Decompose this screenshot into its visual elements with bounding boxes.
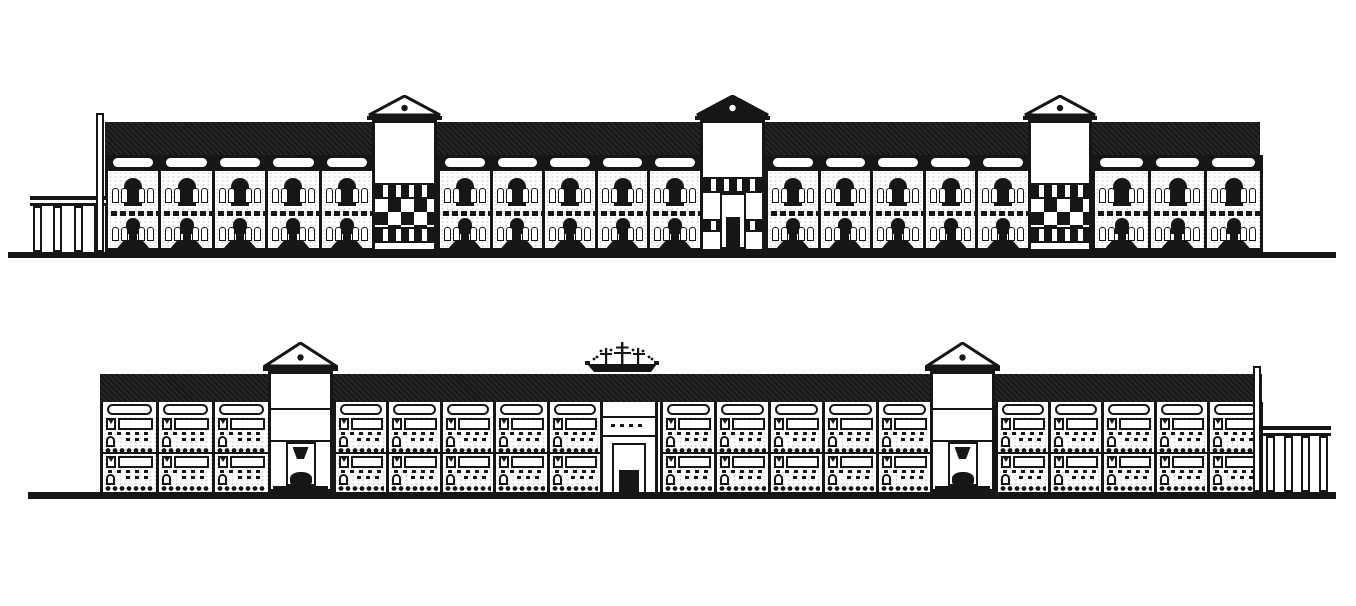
- frieze-panel: [931, 158, 971, 167]
- arch-niche: [1227, 218, 1241, 234]
- lintel-window: [511, 456, 543, 468]
- small-arched-window: [162, 436, 171, 447]
- upper-floor: [493, 171, 543, 211]
- peak-notch-icon: [501, 419, 507, 424]
- small-arched-window: [281, 227, 288, 241]
- niche-pedestal: [1106, 240, 1138, 248]
- frieze-panel: [107, 404, 152, 415]
- peaked-window: [1160, 418, 1170, 430]
- dash-marks: [793, 476, 819, 479]
- small-arched-window: [774, 474, 783, 485]
- dash-marks: [901, 438, 927, 441]
- bay-frieze: [978, 155, 1028, 171]
- window-row: [392, 456, 436, 468]
- small-arched-window: [162, 474, 171, 485]
- small-arched-window: [654, 227, 661, 241]
- facade-segment: [437, 155, 703, 252]
- small-arched-window: [666, 436, 675, 447]
- lower-floor: [161, 216, 211, 252]
- frieze-panel: [447, 404, 489, 415]
- facade-segment: [105, 155, 375, 252]
- bay: [443, 402, 496, 492]
- bay: [103, 402, 159, 492]
- floor: [336, 416, 386, 454]
- dentil-row: [1106, 448, 1152, 453]
- small-arched-window: [1155, 188, 1162, 203]
- pediment-oculus-icon: [401, 105, 407, 111]
- peaked-window: [162, 418, 172, 430]
- dentil-row: [719, 448, 766, 453]
- frieze-panel: [721, 404, 764, 415]
- window-row: [553, 456, 597, 468]
- small-arched-window: [1160, 474, 1169, 485]
- dash-band: [108, 470, 151, 473]
- pavilion-door: [619, 470, 639, 492]
- lower-row: [1157, 474, 1207, 485]
- peak-notch-icon: [884, 419, 890, 424]
- tower-blank-panel: [375, 123, 434, 183]
- small-arched-window: [955, 188, 962, 203]
- tower-pediment: [695, 95, 770, 116]
- floor: [771, 416, 822, 454]
- window-row: [720, 456, 765, 468]
- small-arched-window: [1128, 227, 1135, 241]
- frieze-panel: [327, 158, 367, 167]
- small-arched-window: [964, 227, 971, 241]
- small-arched-window: [584, 188, 591, 203]
- small-arched-window: [1184, 188, 1191, 203]
- dash-band: [1003, 470, 1043, 473]
- lower-floor: [926, 216, 976, 252]
- peaked-window: [1107, 456, 1117, 468]
- small-arched-window: [828, 474, 837, 485]
- floor: [103, 454, 156, 492]
- peak-notch-icon: [164, 419, 170, 424]
- ship-ornament-svg: [585, 340, 659, 374]
- tower: [1023, 95, 1097, 252]
- tower-pediment: [263, 342, 338, 367]
- lower-row: [159, 436, 212, 447]
- bay-frieze: [1151, 155, 1204, 171]
- peaked-window: [106, 418, 116, 430]
- peaked-window: [1001, 418, 1011, 430]
- ship-shape: [585, 342, 659, 372]
- small-arched-window: [772, 227, 779, 241]
- small-arched-window: [1008, 227, 1015, 241]
- upper-floor: [161, 171, 211, 211]
- lower-floor: [493, 216, 543, 252]
- peaked-window: [553, 418, 563, 430]
- peaked-window: [446, 418, 456, 430]
- dentil-row: [445, 448, 491, 453]
- small-arched-window: [1099, 188, 1106, 203]
- bay: [1095, 155, 1151, 252]
- peak-notch-icon: [108, 457, 114, 462]
- dentil-row: [445, 486, 491, 491]
- lintel-window: [678, 418, 711, 430]
- dentil-row: [665, 486, 712, 491]
- lintel-window: [840, 418, 873, 430]
- bay-frieze: [650, 155, 700, 171]
- bay-frieze: [663, 402, 714, 416]
- dentil-row: [665, 448, 712, 453]
- lower-row: [771, 474, 822, 485]
- floor: [717, 416, 768, 454]
- floor: [663, 454, 714, 492]
- tower-pediment: [925, 342, 1000, 367]
- lower-floor: [1207, 216, 1260, 252]
- bay-frieze: [496, 402, 546, 416]
- ground-line: [28, 492, 1336, 499]
- dash-band: [341, 470, 381, 473]
- dentil-row: [338, 486, 384, 491]
- niche-pedestal: [1218, 240, 1250, 248]
- small-arched-window: [1211, 188, 1218, 203]
- small-arched-window: [444, 227, 451, 241]
- small-arched-window: [254, 188, 261, 203]
- small-arched-window: [174, 188, 181, 203]
- dash-band: [1215, 432, 1255, 435]
- pediment-oculus-icon: [729, 105, 735, 111]
- floor: [215, 416, 268, 454]
- niche-pedestal: [829, 240, 861, 248]
- corner-post: [1253, 366, 1261, 492]
- dash-marks: [357, 476, 382, 479]
- lower-row: [215, 474, 268, 485]
- niche-pedestal: [777, 240, 809, 248]
- small-arched-window: [245, 227, 252, 241]
- lintel-window: [1119, 418, 1151, 430]
- peak-notch-icon: [555, 419, 561, 424]
- lintel-window: [1172, 418, 1204, 430]
- upper-floor: [545, 171, 595, 211]
- bay-frieze: [550, 402, 600, 416]
- lower-floor: [768, 216, 818, 252]
- dash-band: [501, 432, 541, 435]
- small-arched-window: [201, 188, 208, 203]
- dash-band: [394, 432, 434, 435]
- small-arched-window: [1164, 227, 1171, 241]
- niche-throat: [841, 233, 849, 240]
- small-arched-window: [680, 188, 687, 203]
- peak-notch-icon: [1109, 419, 1115, 424]
- column: [1284, 436, 1293, 492]
- upper-floor: [322, 171, 372, 211]
- bay: [598, 155, 651, 252]
- peak-notch-icon: [1215, 419, 1221, 424]
- dash-band: [776, 470, 817, 473]
- peaked-window: [339, 418, 349, 430]
- peaked-window: [882, 456, 892, 468]
- dash-band: [1056, 432, 1096, 435]
- squares-band: [1031, 183, 1089, 199]
- niche-pedestal: [277, 240, 309, 248]
- small-arched-window: [602, 227, 609, 241]
- small-arched-window: [991, 188, 998, 203]
- peaked-window: [666, 418, 676, 430]
- small-arched-window: [1249, 227, 1256, 241]
- tower: [263, 342, 338, 492]
- floor: [1051, 454, 1101, 492]
- base-bar: [935, 486, 990, 489]
- bay-frieze: [161, 155, 211, 171]
- peak-notch-icon: [341, 419, 347, 424]
- small-arched-window: [1001, 474, 1010, 485]
- small-arched-window: [991, 227, 998, 241]
- peak-notch-icon: [394, 419, 400, 424]
- bay-frieze: [879, 402, 930, 416]
- small-arched-window: [1128, 188, 1135, 203]
- facade-segment: [995, 402, 1263, 492]
- pediment-shape: [927, 343, 998, 366]
- dentil-row: [1159, 448, 1205, 453]
- niche-throat: [671, 233, 679, 240]
- small-arched-window: [121, 227, 128, 241]
- peaked-window: [774, 418, 784, 430]
- dentil-row: [498, 448, 544, 453]
- window-row: [774, 456, 819, 468]
- floor: [215, 454, 268, 492]
- window-row: [1001, 418, 1045, 430]
- tower-pediment: [367, 95, 442, 116]
- small-arched-window: [807, 188, 814, 203]
- peak-notch-icon: [1003, 457, 1009, 462]
- peaked-window: [392, 456, 402, 468]
- bay-frieze: [215, 155, 265, 171]
- small-arched-window: [112, 227, 119, 241]
- small-arched-window: [165, 227, 172, 241]
- floor: [825, 416, 876, 454]
- window-row: [1160, 456, 1204, 468]
- niche-pedestal: [1162, 240, 1194, 248]
- upper-floor: [650, 171, 700, 211]
- facade-segment: [333, 402, 603, 492]
- small-arched-window: [982, 188, 989, 203]
- upper-floor: [978, 171, 1028, 211]
- frieze-panel: [113, 158, 153, 167]
- lower-floor: [268, 216, 318, 252]
- small-arched-window: [506, 188, 513, 203]
- bay: [545, 155, 598, 252]
- dash-band: [830, 470, 871, 473]
- frieze-panel: [498, 158, 538, 167]
- lower-row: [215, 436, 268, 447]
- colonnade: [1263, 426, 1331, 492]
- window-row: [499, 456, 543, 468]
- bay: [1207, 155, 1263, 252]
- floor: [389, 454, 439, 492]
- lower-row: [443, 474, 493, 485]
- small-arched-window: [138, 227, 145, 241]
- lintel-window: [118, 418, 153, 430]
- lintel-window: [732, 456, 765, 468]
- window-row: [1001, 456, 1045, 468]
- small-arched-window: [912, 188, 919, 203]
- bay-frieze: [873, 155, 923, 171]
- peaked-window: [1213, 418, 1223, 430]
- dash-marks: [182, 476, 209, 479]
- dentil-row: [105, 486, 154, 491]
- lower-row: [103, 436, 156, 447]
- lower-row: [825, 474, 876, 485]
- upper-floor: [598, 171, 648, 211]
- frieze-panel: [1002, 404, 1044, 415]
- bay-frieze: [1051, 402, 1101, 416]
- lintel-window: [1066, 418, 1098, 430]
- peak-notch-icon: [722, 457, 728, 462]
- lintel-window: [786, 456, 819, 468]
- small-arched-window: [245, 188, 252, 203]
- small-arched-window: [549, 227, 556, 241]
- small-arched-window: [1220, 227, 1227, 241]
- dash-marks: [126, 476, 153, 479]
- dash-band: [1162, 470, 1202, 473]
- bay-frieze: [443, 402, 493, 416]
- lower-row: [1104, 436, 1154, 447]
- frieze-panel: [829, 404, 872, 415]
- window-row: [1107, 456, 1151, 468]
- column: [1266, 436, 1275, 492]
- floor: [879, 454, 930, 492]
- niche-throat: [566, 233, 574, 240]
- small-arched-window: [138, 188, 145, 203]
- dentil-row: [881, 486, 928, 491]
- small-arched-window: [506, 227, 513, 241]
- bay-frieze: [493, 155, 543, 171]
- small-arched-window: [219, 227, 226, 241]
- dentil-row: [1053, 486, 1099, 491]
- small-arched-window: [121, 188, 128, 203]
- peaked-window: [1054, 456, 1064, 468]
- small-arched-window: [192, 227, 199, 241]
- lower-row: [879, 436, 930, 447]
- window-row: [1107, 418, 1151, 430]
- dash-marks: [464, 438, 489, 441]
- floor: [496, 416, 546, 454]
- window-row: [339, 418, 383, 430]
- small-arched-window: [326, 227, 333, 241]
- small-arched-window: [575, 188, 582, 203]
- dash-band: [164, 432, 207, 435]
- small-arched-window: [453, 188, 460, 203]
- dentil-row: [1000, 486, 1046, 491]
- lower-floor: [545, 216, 595, 252]
- niche-throat: [1118, 233, 1126, 240]
- small-arched-window: [308, 227, 315, 241]
- frieze-panel: [550, 158, 590, 167]
- tower-upper-panel: [271, 374, 330, 410]
- window-row: [218, 418, 265, 430]
- elevation-drawing-sheet: [0, 0, 1356, 606]
- lower-floor: [978, 216, 1028, 252]
- dash-band: [830, 432, 871, 435]
- dash-band: [448, 432, 488, 435]
- dash-marks: [739, 438, 765, 441]
- small-arched-window: [663, 188, 670, 203]
- niche-throat: [1174, 233, 1182, 240]
- dash-band: [1056, 470, 1096, 473]
- bay-frieze: [103, 402, 156, 416]
- lower-floor: [1095, 216, 1148, 252]
- upper-floor: [108, 171, 158, 211]
- dentil-row: [161, 448, 210, 453]
- dentil-row: [719, 486, 766, 491]
- peak-notch-icon: [448, 419, 454, 424]
- bay: [336, 402, 389, 492]
- floor: [550, 454, 600, 492]
- door-barrel: [952, 472, 974, 486]
- small-arched-window: [654, 188, 661, 203]
- frieze-panel: [340, 404, 382, 415]
- dash-band: [341, 432, 381, 435]
- small-arched-window: [308, 188, 315, 203]
- window-row: [1054, 456, 1098, 468]
- pediment-shape: [265, 343, 336, 366]
- niche-pedestal: [554, 240, 586, 248]
- small-arched-window: [834, 188, 841, 203]
- tower-body: [268, 371, 333, 492]
- bay-frieze: [545, 155, 595, 171]
- bay-frieze: [717, 402, 768, 416]
- dash-marks: [1178, 476, 1203, 479]
- small-arched-window: [1054, 474, 1063, 485]
- lintel-window: [678, 456, 711, 468]
- dash-marks: [1072, 438, 1097, 441]
- peak-notch-icon: [830, 457, 836, 462]
- lower-row: [663, 474, 714, 485]
- dentil-row: [552, 486, 598, 491]
- squares-band: [375, 227, 434, 243]
- tower-upper-panel: [933, 374, 992, 410]
- small-arched-window: [1137, 227, 1144, 241]
- small-arched-window: [903, 227, 910, 241]
- dash-marks: [411, 476, 436, 479]
- bay: [825, 402, 879, 492]
- dash-band: [555, 470, 595, 473]
- small-arched-window: [964, 188, 971, 203]
- small-arched-window: [877, 227, 884, 241]
- small-arched-window: [859, 227, 866, 241]
- lower-row: [103, 474, 156, 485]
- dash-band: [722, 470, 763, 473]
- small-arched-window: [772, 188, 779, 203]
- small-arched-window: [1240, 188, 1247, 203]
- lintel-window: [404, 456, 436, 468]
- bay-frieze: [1104, 402, 1154, 416]
- dash-marks: [517, 438, 542, 441]
- column: [74, 206, 83, 252]
- small-arched-window: [1137, 188, 1144, 203]
- window-row: [499, 418, 543, 430]
- bay: [215, 155, 268, 252]
- frieze-panel: [883, 404, 926, 415]
- floor: [879, 416, 930, 454]
- bay: [493, 155, 546, 252]
- squares-band: [1031, 227, 1089, 243]
- small-arched-window: [602, 188, 609, 203]
- small-arched-window: [326, 188, 333, 203]
- small-arched-window: [886, 227, 893, 241]
- peak-notch-icon: [164, 457, 170, 462]
- upper-floor: [215, 171, 265, 211]
- dentil-row: [1106, 486, 1152, 491]
- window-row: [1213, 456, 1257, 468]
- lintel-window: [404, 418, 436, 430]
- small-arched-window: [558, 188, 565, 203]
- dentil-row: [498, 486, 544, 491]
- small-arched-window: [663, 227, 670, 241]
- small-arched-window: [611, 188, 618, 203]
